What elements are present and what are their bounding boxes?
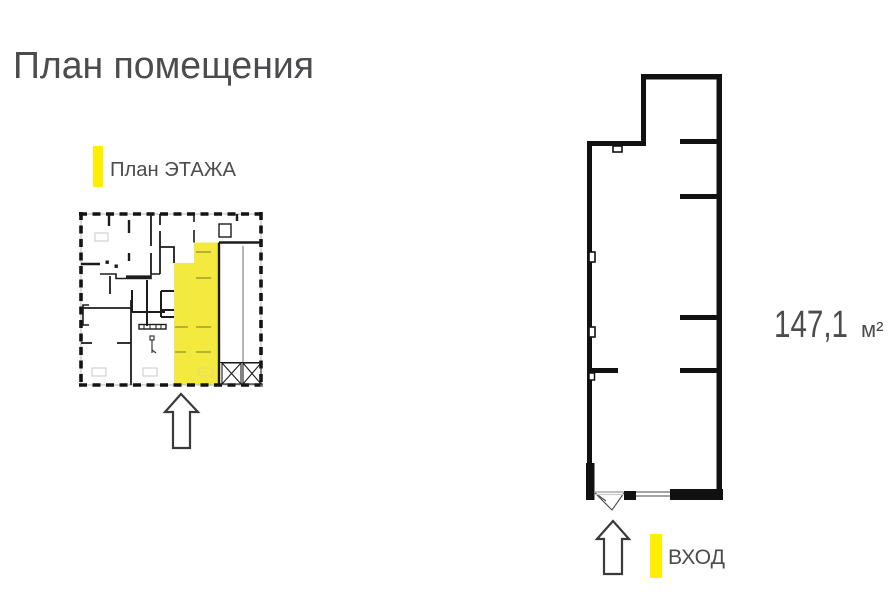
svg-text:м²: м² bbox=[861, 317, 883, 342]
svg-text:План ЭТАЖА: План ЭТАЖА bbox=[110, 159, 237, 181]
svg-text:План помещения: План помещения bbox=[13, 45, 314, 87]
svg-text:147,1: 147,1 bbox=[774, 304, 848, 346]
svg-text:ВХОД: ВХОД bbox=[668, 546, 725, 569]
